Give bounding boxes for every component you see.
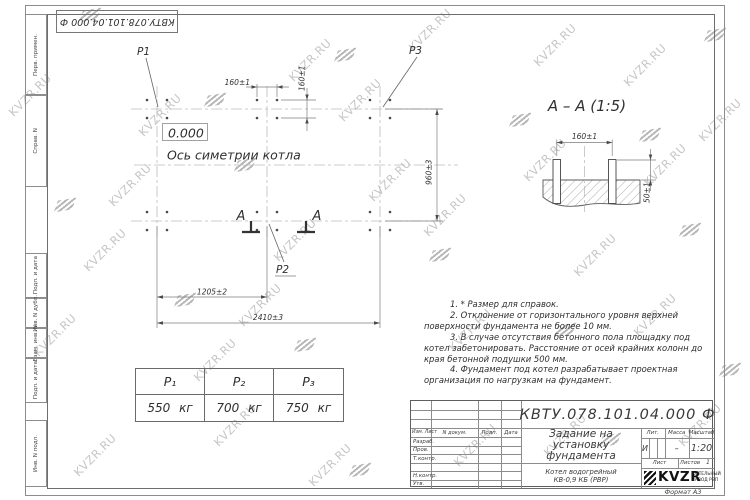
section-title: А – А (1:5) (547, 97, 626, 115)
dim-50-section: 50±1 (643, 182, 652, 203)
tb-col-ndokum: N докум. (431, 428, 478, 437)
tb-doc-number: КВТУ.078.101.04.000 Ф (521, 401, 714, 428)
title-block: Изм. Лист N докум. Подп. Дата Разраб. Пр… (410, 400, 713, 487)
tb-row-prov: Пров. (413, 447, 429, 453)
loads-value-p2: 700 кг (205, 395, 274, 421)
tb-row-utv: Утв. (413, 481, 424, 487)
tb-drawing-title: Задание на установку фундамента (521, 428, 641, 463)
dim-2410: 2410±3 (253, 313, 283, 322)
dim-1205: 1205±2 (197, 288, 227, 297)
plan-section-marks (242, 221, 315, 233)
strip-podp-data-2: Подп. и дата (25, 358, 47, 403)
strip-podp-data-1: Подп. и дата (25, 253, 47, 298)
top-left-stamp: КВТУ.078.101.04.000 Ф (56, 10, 178, 33)
tb-sheets-value: 1 (702, 458, 714, 468)
symmetry-axis-label: Ось симетрии котла (167, 148, 301, 163)
strip-label: Подп. и дата (33, 256, 39, 294)
note-4: 4. Фундамент под котел разрабатывает про… (424, 364, 712, 386)
loads-header-p2: P₂ (205, 369, 274, 395)
strip-inv-podl: Инв. N подл. (25, 420, 47, 487)
note-1: 1. * Размер для справок. (424, 299, 712, 310)
top-left-doc-number: КВТУ.078.101.04.000 Ф (60, 16, 175, 27)
dim-160-section: 160±1 (572, 132, 597, 141)
strip-vzam-inv: Взам. инв. N (25, 328, 47, 358)
strip-label: Взам. инв. N (33, 325, 39, 361)
tb-scale-value: 1:20 (689, 438, 714, 458)
plan-leaders (146, 57, 417, 276)
tb-mass-value: – (665, 438, 690, 458)
strip-label: Инв. N подл. (33, 435, 39, 472)
load-point-p2-label: P2 (276, 264, 289, 276)
tb-col-podp: Подп. (478, 428, 501, 437)
section-a-a-view: А – А (1:5) 160±1 50±1 (478, 88, 720, 218)
loads-value-p3: 750 кг (274, 395, 343, 421)
tb-lit-value: И (641, 438, 649, 458)
tb-row-tkontr: Т.контр. (413, 456, 436, 462)
loads-header-p3: P₃ (274, 369, 343, 395)
tb-mass-label: Масса (665, 428, 690, 438)
level-mark: 0.000 (168, 126, 204, 141)
loads-value-p1: 550 кг (136, 395, 205, 421)
kvzr-logo-icon (644, 471, 656, 485)
dim-960: 960±3 (425, 159, 434, 185)
load-point-p3-label: P3 (409, 45, 422, 57)
section-letter-a2: А (312, 209, 322, 224)
drawing-sheet: { "watermark": { "text": "KVZR.RU" }, "s… (0, 0, 750, 500)
strip-label: Подп. и дата (33, 361, 39, 399)
loads-header-p1: P₁ (136, 369, 205, 395)
strip-perv-primen: Перв. примен. (25, 14, 47, 95)
dim-160-vertical: 160±1 (298, 66, 307, 91)
tb-row-nkontr: Н.контр. (413, 473, 437, 479)
technical-notes: 1. * Размер для справок. 2. Отклонение о… (424, 299, 712, 386)
loads-table: P₁ P₂ P₃ 550 кг 700 кг 750 кг (135, 368, 344, 422)
strip-label: Перв. примен. (33, 34, 39, 76)
tb-lit-label: Лит. (641, 428, 665, 438)
strip-label: Справ. N (33, 128, 39, 154)
load-point-p1-label: P1 (137, 46, 150, 58)
strip-sprav-n: Справ. N (25, 95, 47, 187)
anchor-bolt-right (609, 160, 617, 204)
anchor-bolt-left (553, 160, 561, 204)
tb-product-name: Котел водогрейный КВ-0,9 КБ (РВР) (521, 463, 641, 488)
section-letter-a1: А (236, 209, 246, 224)
tb-sheets-label: Листов (678, 458, 702, 468)
note-3: 3. В случае отсутствия бетонного пола пл… (424, 332, 712, 365)
foundation-plan-view: 0.000 Ось симетрии котла P1 P2 P3 А А 16… (120, 25, 470, 340)
tb-col-data: Дата (501, 428, 521, 437)
company-name: КОТЕЛЬНЫЙ ЗАВОД РЭП (692, 472, 721, 483)
tb-row-razrab: Разраб. (413, 439, 434, 445)
note-2: 2. Отклонение от горизонтального уровня … (424, 310, 712, 332)
tb-sheet-label: Лист (641, 458, 678, 468)
dim-160-horizontal: 160±1 (225, 78, 250, 87)
tb-scale-label: Масштаб (689, 428, 714, 438)
strip-inv-dubl: Инв. N дубл. (25, 298, 47, 328)
format-label: Формат А3 (633, 488, 733, 496)
